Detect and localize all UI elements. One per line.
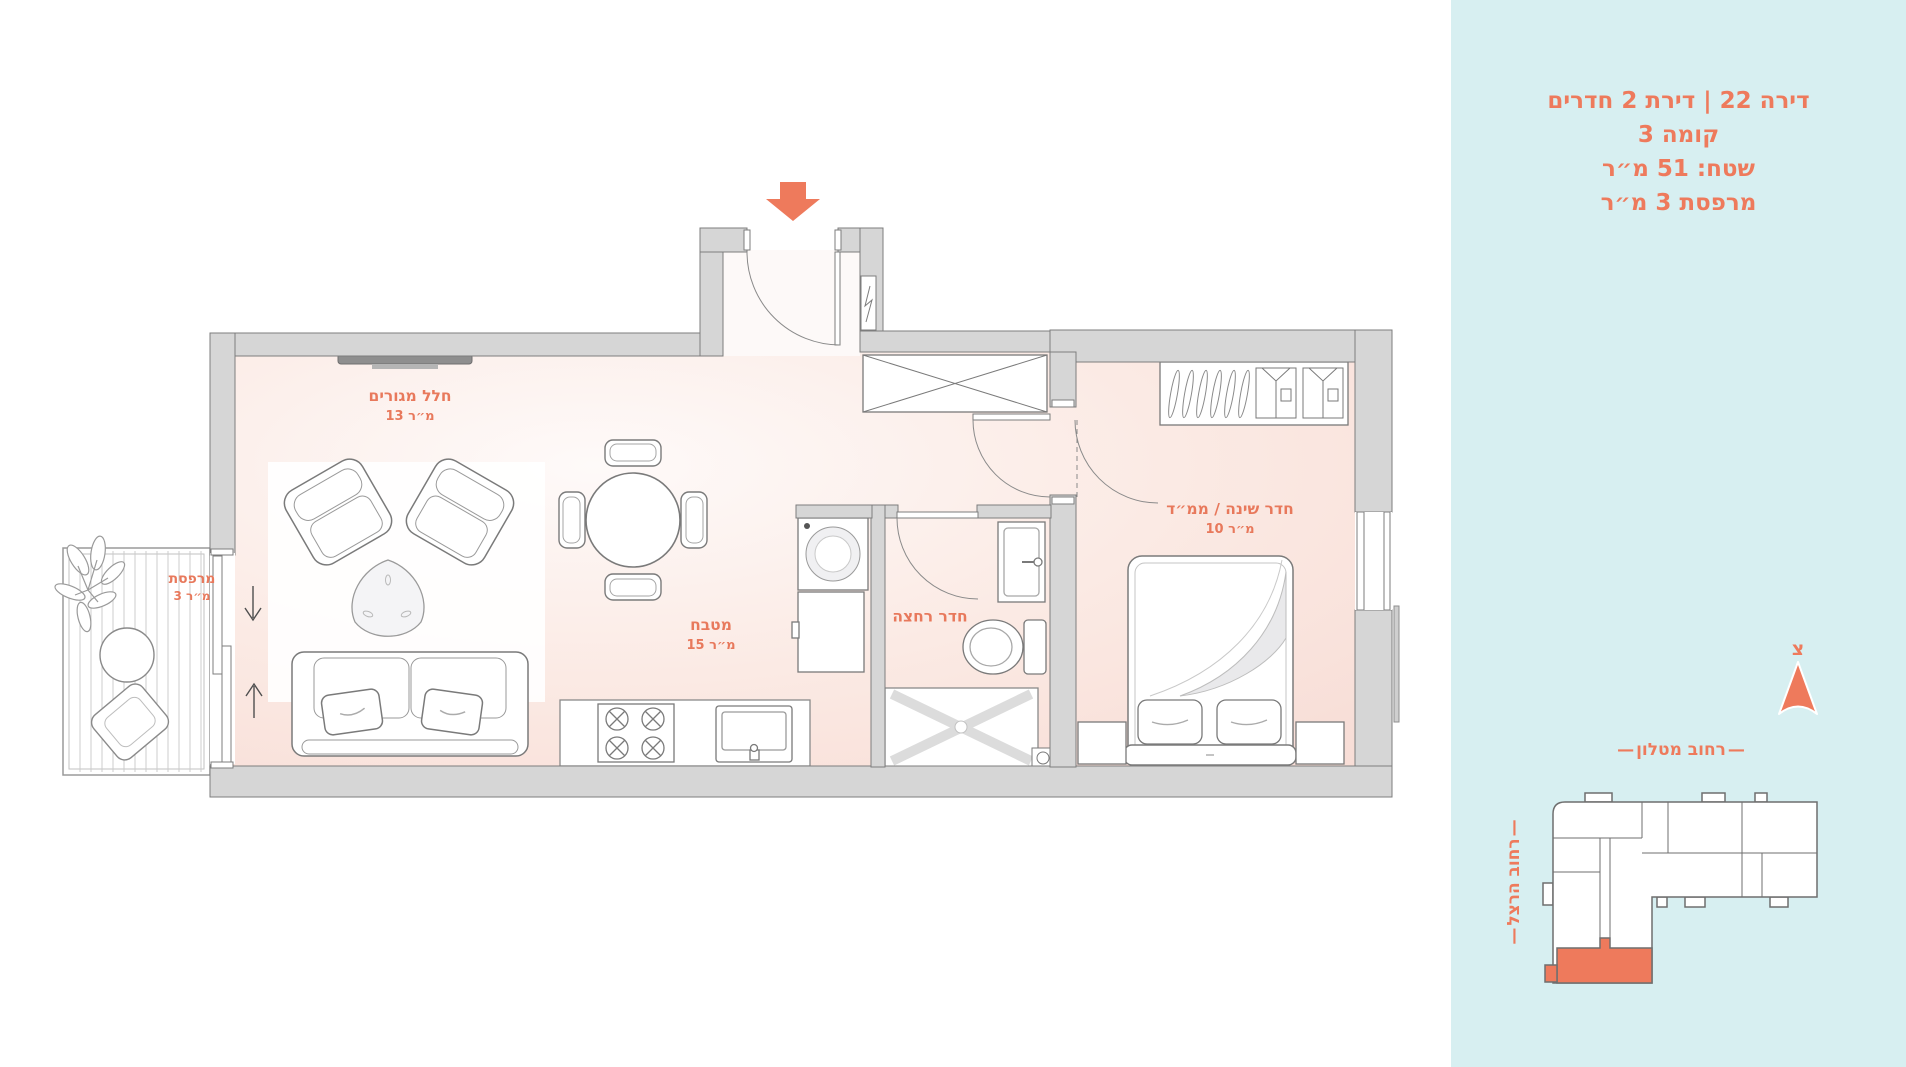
sofa-pillow	[320, 688, 383, 736]
compass-north-letter: צ	[1792, 638, 1804, 660]
dining-chair	[681, 492, 707, 548]
dash-decoration: —	[1504, 817, 1524, 838]
dining-chair	[605, 574, 661, 600]
nightstand	[1296, 722, 1344, 764]
balcony-table	[100, 628, 154, 682]
dash-decoration: —	[1726, 740, 1747, 760]
apartment-area-line: שטח: 51 מ״ר	[1451, 152, 1906, 186]
room-area: 3 מ״ר	[169, 588, 216, 604]
room-area: 15 מ״ר	[686, 636, 735, 655]
room-label-kitchen: מטבח 15 מ״ר	[686, 615, 735, 655]
folded-shirt-icon	[1303, 368, 1343, 418]
apartment-floor-line: קומה 3	[1451, 118, 1906, 152]
kitchen-counter	[560, 700, 810, 766]
washing-machine	[798, 518, 868, 590]
street-label-side: —רחוב הרצל—	[1504, 817, 1524, 946]
compass-arrow-icon	[1779, 662, 1817, 714]
room-name: מרפסת	[169, 570, 216, 588]
dash-decoration: —	[1504, 926, 1524, 947]
exterior-shutter-rail	[1394, 606, 1399, 722]
key-plan	[1543, 793, 1817, 983]
street-name-top: רחוב מטלון	[1636, 740, 1726, 760]
bed	[1124, 556, 1296, 766]
room-area: 13 מ״ר	[369, 407, 452, 426]
kitchen-cabinet	[792, 592, 864, 672]
street-name-side: רחוב הרצל	[1504, 838, 1524, 925]
folded-shirt-icon	[1256, 368, 1296, 418]
utility-niche	[861, 276, 876, 330]
closet	[1160, 362, 1348, 425]
toilet	[963, 620, 1046, 674]
apartment-title: דירה 22 | דירת 2 חדרים	[1451, 84, 1906, 118]
nightstand	[1078, 722, 1126, 764]
room-name: חדר שינה / ממ״ד	[1166, 499, 1293, 520]
room-label-bedroom: חדר שינה / ממ״ד 10 מ״ר	[1166, 499, 1293, 539]
room-label-bathroom: חדר רחצה	[892, 607, 967, 628]
street-label-top: —רחוב מטלון—	[1615, 740, 1747, 760]
room-label-living: חלל מגורים 13 מ״ר	[369, 386, 452, 426]
dash-decoration: —	[1615, 740, 1636, 760]
shower	[885, 688, 1054, 769]
stove	[598, 704, 674, 762]
entrance-arrow-icon	[766, 182, 820, 221]
room-label-balcony: מרפסת 3 מ״ר	[169, 570, 216, 604]
dining-chair	[559, 492, 585, 548]
bathroom-sink	[998, 522, 1045, 602]
sofa	[292, 652, 528, 756]
room-name: מטבח	[686, 615, 735, 636]
room-name: חדר רחצה	[892, 607, 967, 628]
apartment-info-block: דירה 22 | דירת 2 חדרים קומה 3 שטח: 51 מ״…	[1451, 84, 1906, 220]
room-area: 10 מ״ר	[1166, 520, 1293, 539]
dining-table	[586, 473, 680, 567]
room-name: חלל מגורים	[369, 386, 452, 407]
kitchen-sink	[716, 706, 792, 762]
storage-cabinet	[863, 355, 1047, 412]
dining-chair	[605, 440, 661, 466]
sofa-pillow	[420, 688, 483, 736]
apartment-balcony-line: מרפסת 3 מ״ר	[1451, 186, 1906, 220]
floorplan-page: דירה 22 | דירת 2 חדרים קומה 3 שטח: 51 מ״…	[0, 0, 1906, 1067]
